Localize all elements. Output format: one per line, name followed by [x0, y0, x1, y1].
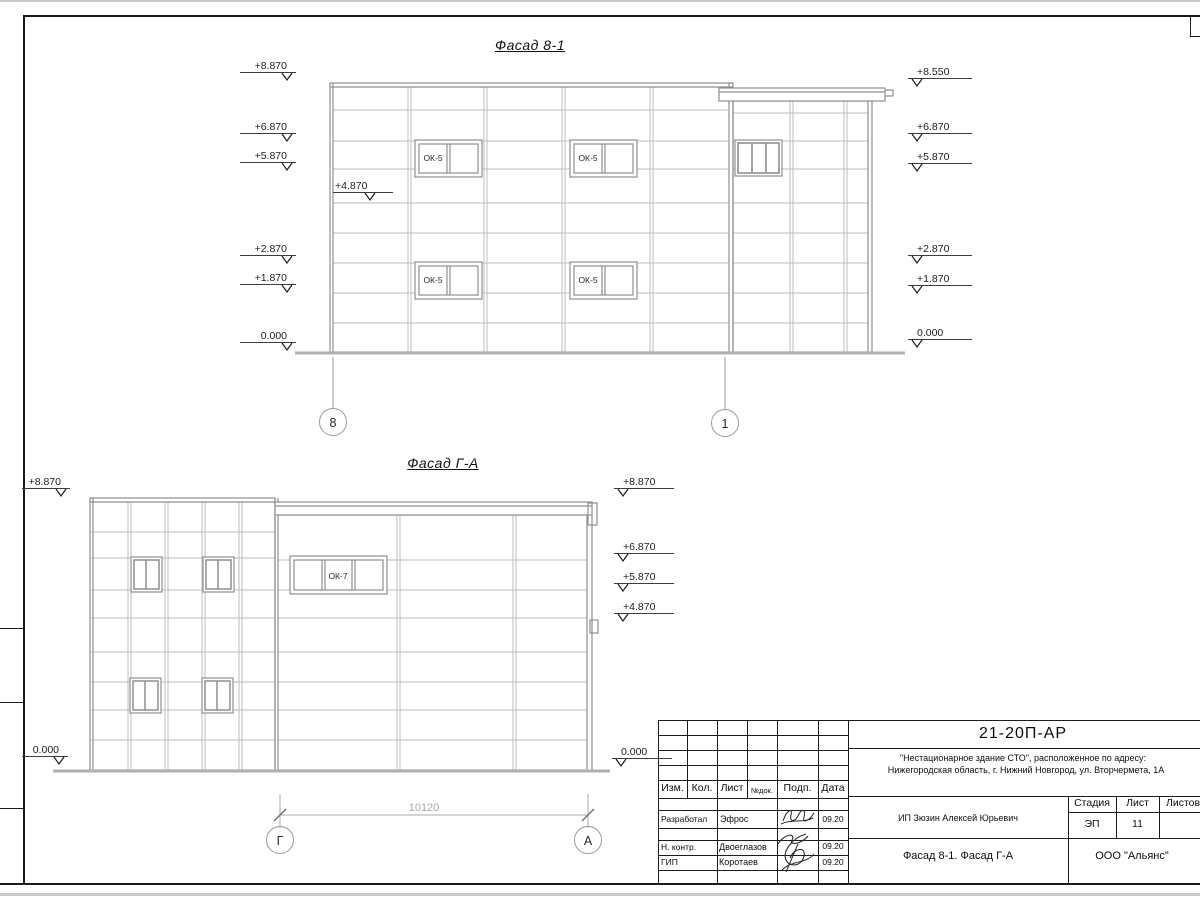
elevation-mark: +6.870 — [614, 541, 674, 554]
elevation-mark: +2.870 — [908, 243, 972, 256]
tb-name: Эфрос — [720, 814, 748, 825]
elevation-arrow-icon — [910, 163, 924, 173]
elevation-arrow-icon — [910, 78, 924, 88]
elevation-mark: 0.000 — [612, 746, 672, 759]
tb-col-kol: Кол. — [687, 783, 717, 794]
window-label: ОК-5 — [578, 153, 597, 163]
facade1-panel-joints — [333, 87, 868, 352]
elevation-mark: +1.870 — [908, 273, 972, 286]
tb-col-data: Дата — [818, 783, 848, 794]
sheets-label: Листов — [1159, 798, 1200, 809]
dimension-label: 10120 — [409, 802, 440, 814]
drawing-title: Фасад 8-1. Фасад Г-А — [848, 851, 1068, 862]
facade1-title: Фасад 8-1 — [455, 37, 605, 53]
elevation-mark: +5.870 — [614, 571, 674, 584]
frame-bottom — [0, 883, 1200, 885]
elevation-arrow-icon — [52, 756, 66, 766]
tb-col-ndok: №док. — [747, 785, 777, 796]
elevation-arrow-icon — [363, 192, 377, 202]
elevation-arrow-icon — [616, 613, 630, 623]
tb-role: ГИП — [661, 857, 678, 868]
elevation-arrow-icon — [616, 488, 630, 498]
elevation-mark: 0.000 — [908, 327, 972, 340]
elevation-mark: +4.870 — [333, 180, 393, 193]
elevation-mark: +8.870 — [22, 476, 70, 489]
tb-col-izm: Изм. — [658, 783, 687, 794]
drawing-sheet: Фасад 8-1 ОК-5 ОК-5 ОК-5 — [0, 0, 1200, 900]
elevation-mark: +1.870 — [240, 272, 296, 285]
elevation-arrow-icon — [910, 339, 924, 349]
elevation-arrow-icon — [616, 583, 630, 593]
axis-bubble-label: 8 — [330, 416, 337, 430]
client-name: ИП Зюзин Алексей Юрьевич — [848, 813, 1068, 824]
stage-label: Стадия — [1068, 798, 1116, 809]
elevation-arrow-icon — [280, 342, 294, 352]
facade2-drawing: ОК-7 10120 Г А — [20, 450, 670, 870]
project-code: 21-20П-АР — [848, 725, 1198, 743]
sheet-bottom-edge — [0, 893, 1200, 896]
tb-name: Двоеглазов — [719, 842, 767, 853]
elevation-arrow-icon — [280, 284, 294, 294]
elevation-arrow-icon — [280, 133, 294, 143]
axis-bubble-label: Г — [277, 834, 284, 848]
window-label: ОК-5 — [423, 275, 442, 285]
signature — [772, 830, 818, 874]
facade2-outline — [90, 498, 598, 770]
facade2-windows — [130, 556, 387, 713]
tb-col-podp: Подп. — [777, 783, 818, 794]
tb-role: Разработал — [661, 814, 707, 825]
window-label: ОК-5 — [423, 153, 442, 163]
elevation-mark: +8.550 — [908, 66, 972, 79]
axis-bubble-label: 1 — [722, 417, 729, 431]
facade1-windows — [415, 140, 782, 299]
axis-bubble-label: А — [584, 834, 593, 848]
sheet-number: 11 — [1116, 819, 1159, 830]
stage-value: ЭП — [1068, 819, 1116, 830]
sheet-label: Лист — [1116, 798, 1159, 809]
frame-corner-box-v — [1190, 15, 1191, 36]
elevation-arrow-icon — [614, 758, 628, 768]
tb-date: 09.20 — [818, 814, 848, 825]
elevation-mark: +8.870 — [614, 476, 674, 489]
elevation-arrow-icon — [280, 255, 294, 265]
frame-top — [23, 15, 1200, 17]
facade2-panel-joints — [90, 502, 587, 770]
company-name: ООО "Альянс" — [1068, 851, 1196, 862]
elevation-arrow-icon — [616, 553, 630, 563]
project-address-line2: Нижегородская область, г. Нижний Новгоро… — [848, 765, 1200, 776]
elevation-arrow-icon — [54, 488, 68, 498]
elevation-mark: 0.000 — [22, 744, 68, 757]
facade1-axis-leaders — [320, 357, 739, 437]
frame-corner-box-h — [1190, 36, 1200, 37]
elevation-arrow-icon — [910, 133, 924, 143]
elevation-arrow-icon — [280, 72, 294, 82]
elevation-arrow-icon — [910, 255, 924, 265]
elevation-mark: +2.870 — [240, 243, 296, 256]
sheet-top-edge — [0, 0, 1200, 2]
tb-role: Н. контр. — [661, 842, 696, 853]
facade1-drawing: ОК-5 ОК-5 ОК-5 ОК-5 8 1 — [280, 55, 970, 445]
signature — [779, 805, 817, 828]
facade2-axis-bubbles — [267, 827, 602, 854]
elevation-mark: +5.870 — [908, 151, 972, 164]
facade1-axis-labels: 8 1 — [330, 416, 729, 431]
elevation-mark: 0.000 — [240, 330, 296, 343]
facade1-outline — [330, 83, 893, 352]
tb-col-list: Лист — [717, 783, 747, 794]
window-label: ОК-5 — [578, 275, 597, 285]
tb-name: Коротаев — [719, 857, 758, 868]
elevation-mark: +4.870 — [614, 601, 674, 614]
project-address-line1: "Нестационарное здание СТО", расположенн… — [848, 753, 1198, 764]
facade2-axis-labels: Г А — [277, 834, 593, 848]
elevation-arrow-icon — [910, 285, 924, 295]
elevation-mark: +6.870 — [240, 121, 296, 134]
elevation-mark: +6.870 — [908, 121, 972, 134]
window-label: ОК-7 — [328, 571, 347, 581]
tb-date: 09.20 — [818, 857, 848, 868]
tb-date: 09.20 — [818, 841, 848, 852]
elevation-arrow-icon — [280, 162, 294, 172]
elevation-mark: +5.870 — [240, 150, 296, 163]
elevation-mark: +8.870 — [240, 60, 296, 73]
